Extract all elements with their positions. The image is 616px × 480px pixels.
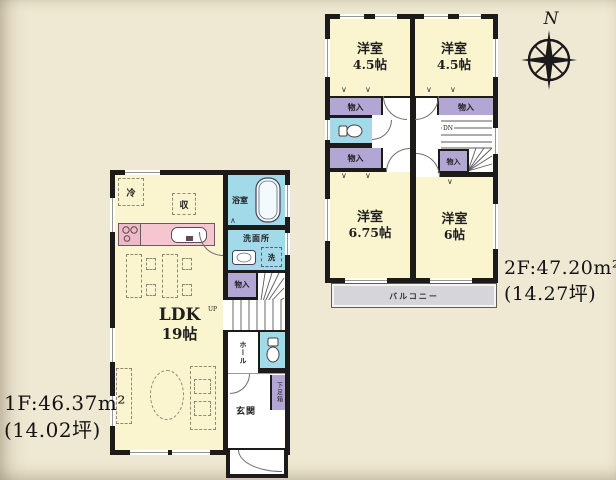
entrance-label: 玄関 — [236, 404, 256, 417]
fridge-label: 冷 — [126, 186, 135, 199]
wash-basin-icon — [232, 250, 256, 265]
ldk-size: 19帖 — [142, 325, 217, 343]
coffee-table — [150, 370, 184, 420]
window — [110, 198, 115, 232]
bathtub-icon — [255, 177, 281, 223]
washroom-label: 洗面所 — [228, 234, 285, 242]
window — [130, 450, 168, 455]
bath-label: 浴室 — [232, 196, 248, 204]
laundry-box: 洗 — [261, 247, 282, 267]
bedroom-3-size: 6.75帖 — [349, 226, 392, 240]
window — [110, 328, 115, 362]
toilet-icon — [265, 337, 281, 364]
window — [493, 39, 498, 77]
hall-1f: ホール — [228, 332, 258, 373]
bedroom-1-name: 洋室 — [357, 42, 383, 58]
dining-table — [126, 254, 142, 298]
closet-2f-1: 物入 — [330, 98, 383, 115]
bedroom-4: 洋室 6帖 — [416, 177, 493, 278]
balcony: バルコニー — [331, 283, 497, 308]
bifold-door-icon: ∨ — [365, 172, 371, 180]
stove-icon — [119, 224, 141, 245]
toilet-room-1f — [258, 330, 285, 370]
balcony-label: バルコニー — [389, 292, 439, 300]
window — [125, 170, 160, 175]
shoebox: 下足箱 — [270, 375, 285, 410]
storage-box: 収 — [172, 193, 196, 215]
dining-table — [162, 254, 178, 298]
bedroom-4-name: 洋室 — [441, 212, 467, 228]
floor2-plan: DN 洋室 4.5帖 洋室 4.5帖 洋室 6.75帖 洋室 6帖 物入 物入 — [325, 14, 498, 283]
hall-label: ホール — [238, 341, 248, 365]
ldk-name: LDK — [142, 305, 217, 325]
window — [424, 14, 448, 19]
closet-2f-2: 物入 — [437, 98, 493, 115]
floor2-area-label: 2F:47.20m² — [504, 256, 616, 282]
dining-chair — [146, 284, 156, 296]
entrance-door-arc — [238, 450, 282, 472]
stove-area — [119, 224, 141, 245]
closet-2f-2-label: 物入 — [458, 103, 474, 111]
straight-stairs-1f — [223, 300, 285, 330]
closet-2f-4-label: 物入 — [447, 158, 461, 165]
storage-label: 収 — [179, 198, 188, 211]
bifold-door-icon: ∨ — [426, 86, 432, 94]
window — [325, 39, 330, 77]
floorplan-canvas: DN 洋室 4.5帖 洋室 4.5帖 洋室 6.75帖 洋室 6帖 物入 物入 — [0, 0, 616, 480]
closet-2f-3-label: 物入 — [348, 154, 364, 162]
window — [375, 14, 397, 19]
sofa-cushion — [194, 401, 211, 416]
bifold-door-icon: ∨ — [341, 172, 347, 180]
floor1-tsubo-label: (14.02坪) — [4, 417, 126, 444]
floor2-area-block: 2F:47.20m² (14.27坪) — [504, 256, 616, 307]
compass-north-glyph: N — [543, 9, 560, 29]
bath-room: 浴室 — [228, 175, 285, 225]
bedroom-4-size: 6帖 — [444, 228, 465, 242]
dining-chair — [182, 284, 192, 296]
window — [493, 204, 498, 249]
closet-2f-4: 物入 — [438, 149, 469, 173]
ldk-label: LDK 19帖 — [142, 305, 217, 343]
porch — [226, 450, 288, 478]
bedroom-3: 洋室 6.75帖 — [330, 172, 410, 278]
window — [285, 185, 290, 217]
dining-chair — [146, 258, 156, 270]
fridge-box: 冷 — [118, 178, 144, 206]
closet-2f-1-label: 物入 — [348, 103, 364, 111]
toilet-icon — [338, 123, 364, 139]
bifold-door-icon: ∨ — [341, 86, 347, 94]
window — [285, 233, 290, 255]
floor1-area-label: 1F:46.37m² — [4, 390, 126, 417]
compass-icon: N — [512, 6, 586, 90]
closet-1f-label: 物入 — [235, 281, 250, 289]
bedroom-3-name: 洋室 — [357, 210, 383, 226]
toilet-room-2f — [330, 118, 372, 143]
floor1-area-block: 1F:46.37m² (14.02坪) — [4, 390, 126, 444]
bedroom-2-size: 4.5帖 — [437, 58, 471, 72]
bifold-door-icon: ∨ — [365, 86, 371, 94]
window — [459, 14, 481, 19]
compass: N — [512, 6, 586, 90]
window — [325, 199, 330, 241]
shoebox-label: 下足箱 — [276, 382, 282, 403]
laundry-label: 洗 — [268, 252, 276, 263]
bifold-door-icon: ∨ — [447, 178, 453, 186]
floor1-plan: LDK 19帖 浴室 洗面所 洗 物入 — [110, 170, 290, 455]
bedroom-1-size: 4.5帖 — [353, 58, 387, 72]
window — [172, 450, 210, 455]
bifold-door-icon: ∧ — [230, 217, 236, 225]
closet-1f: 物入 — [228, 273, 258, 297]
stairs-up-treads-icon — [223, 300, 285, 330]
closet-2f-3: 物入 — [330, 148, 383, 168]
sofa-cushion — [194, 379, 211, 394]
sofa — [190, 366, 216, 430]
bedroom-2-name: 洋室 — [441, 42, 467, 58]
stairs-up-label: UP — [208, 307, 217, 313]
floor2-tsubo-label: (14.27坪) — [504, 282, 616, 308]
dining-chair — [182, 258, 192, 270]
bifold-door-icon: ∨ — [450, 86, 456, 94]
window — [340, 14, 364, 19]
window — [325, 120, 330, 140]
stairs-down-label: DN — [442, 126, 454, 132]
window — [493, 128, 498, 154]
door-arc — [230, 374, 250, 394]
washroom: 洗面所 洗 — [228, 230, 285, 270]
